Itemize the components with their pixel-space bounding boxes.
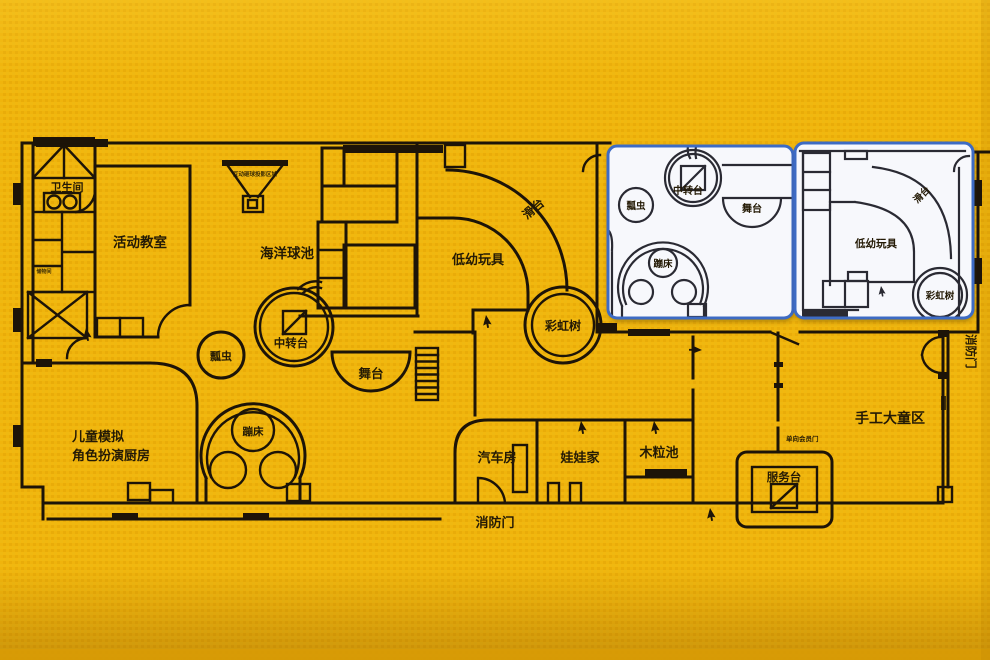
- inset-left-ladybug-label: 瓢虫: [626, 200, 646, 212]
- inset-panel-right: 滑台 低幼玩具 彩虹树: [795, 143, 973, 322]
- wall-block-left: [13, 308, 23, 332]
- inset-left-transfer-label: 中转台: [673, 184, 703, 197]
- background-bottom-strip: [0, 649, 990, 660]
- inset-left-trampoline-label: 蹦床: [653, 258, 673, 270]
- background-right-strip: [981, 0, 990, 660]
- service-desk-label: 服务台: [767, 470, 802, 484]
- background-vignette: [0, 0, 990, 660]
- inset-panel-left: 中转台 瓢虫 舞台 蹦床: [607, 146, 793, 318]
- ladybug-label: 瓢虫: [210, 349, 232, 363]
- bathroom-label: 卫生间: [51, 180, 84, 194]
- member-door-label: 单向会员门: [786, 434, 819, 443]
- toddler-toys-label: 低幼玩具: [451, 252, 504, 268]
- kitchen-label-line2: 角色扮演厨房: [72, 448, 150, 464]
- wood-chip-pool-label: 木粒池: [638, 445, 678, 461]
- wall-block: [628, 329, 670, 336]
- threshold-mark: [243, 513, 269, 519]
- kitchen-label-line1: 儿童模拟: [71, 429, 124, 445]
- inset-right-toddler-toys-label: 低幼玩具: [854, 237, 897, 250]
- doll-house-label: 娃娃家: [559, 450, 600, 466]
- ball-pool-label: 海洋球池: [260, 245, 314, 262]
- projection-note-label: 互动砸球投影区域: [233, 170, 278, 178]
- inset-right-wall-block: [802, 311, 848, 317]
- fire-door-right-label: 消防门: [964, 334, 978, 369]
- wall-block-right: [974, 258, 982, 284]
- threshold-mark: [112, 513, 138, 519]
- car-room-label: 汽车房: [477, 450, 516, 466]
- floor-plan-screenshot: 消防门 卫生间 储物间: [0, 0, 990, 660]
- craft-kids-area-label: 手工大童区: [855, 410, 925, 427]
- wall-block-left: [13, 183, 23, 205]
- inset-right-rainbow-tree-label: 彩虹树: [925, 290, 955, 302]
- inset-left-stage-label: 舞台: [742, 202, 762, 215]
- activity-room-label: 活动教室: [113, 234, 167, 251]
- wall-block-right: [974, 180, 982, 206]
- rainbow-tree-label: 彩虹树: [544, 318, 581, 333]
- stage-label: 舞台: [357, 366, 383, 381]
- kids-playground-floor-plan: 消防门 卫生间 储物间: [0, 0, 990, 660]
- wall-block-left: [13, 425, 23, 447]
- trampoline-label: 蹦床: [243, 425, 264, 438]
- transfer-station-label: 中转台: [274, 336, 309, 350]
- storage-small-label: 储物间: [36, 268, 51, 275]
- fire-door-bottom-label: 消防门: [475, 515, 514, 531]
